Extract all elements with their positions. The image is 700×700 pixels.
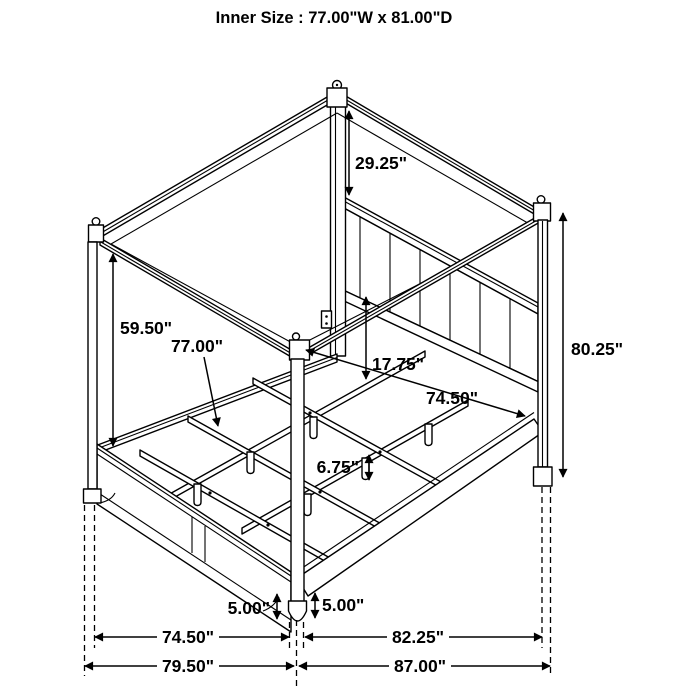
rail-bracket [322,311,332,328]
left-post [88,242,97,489]
diagram-canvas: Inner Size : 77.00"W x 81.00"D [0,0,700,700]
dim-rail-floor-clearance-label: 5.00" [322,595,364,615]
back-post [322,105,346,356]
right-side-rail [297,419,543,596]
left-post-foot [84,489,102,503]
dim-inner-depth-label: 74.50" [426,388,478,408]
dim-canopy-drop: 29.25" [349,111,407,195]
dim-center-leg-height-label: 6.75" [317,457,359,477]
dim-post-height: 80.25" [563,213,623,477]
canopy-finial [537,196,545,204]
canopy-finial [92,218,100,226]
diagram-title: Inner Size : 77.00"W x 81.00"D [216,9,453,27]
dim-rail-to-headboard-label: 17.75" [372,354,424,374]
dim-footboard-floor-clearance-label: 5.00" [228,598,270,618]
canopy-finial [293,333,300,340]
dim-canopy-drop-label: 29.25" [355,153,407,173]
dim-overall-depth-label: 87.00" [394,656,446,676]
dim-rail-floor-clearance: 5.00" [315,593,364,618]
dim-overall-width-label: 79.50" [162,656,214,676]
dim-center-leg-height: 6.75" [317,455,369,480]
right-post-foot [534,467,553,486]
dim-overall-depth: 87.00" [299,656,550,676]
dim-footboard-width: 74.50" [95,627,289,647]
dim-overall-width: 79.50" [85,656,294,676]
dim-under-canopy-height-label: 59.50" [120,318,172,338]
canopy-bed-dimension-diagram: Inner Size : 77.00"W x 81.00"D [0,0,700,700]
dim-side-length: 82.25" [305,627,542,647]
front-post [291,359,304,602]
dim-post-height-label: 80.25" [571,339,623,359]
dim-inner-width-label: 77.00" [171,336,223,356]
dim-footboard-floor-clearance: 5.00" [228,594,277,619]
dim-footboard-width-label: 74.50" [162,627,214,647]
dim-side-length-label: 82.25" [392,627,444,647]
